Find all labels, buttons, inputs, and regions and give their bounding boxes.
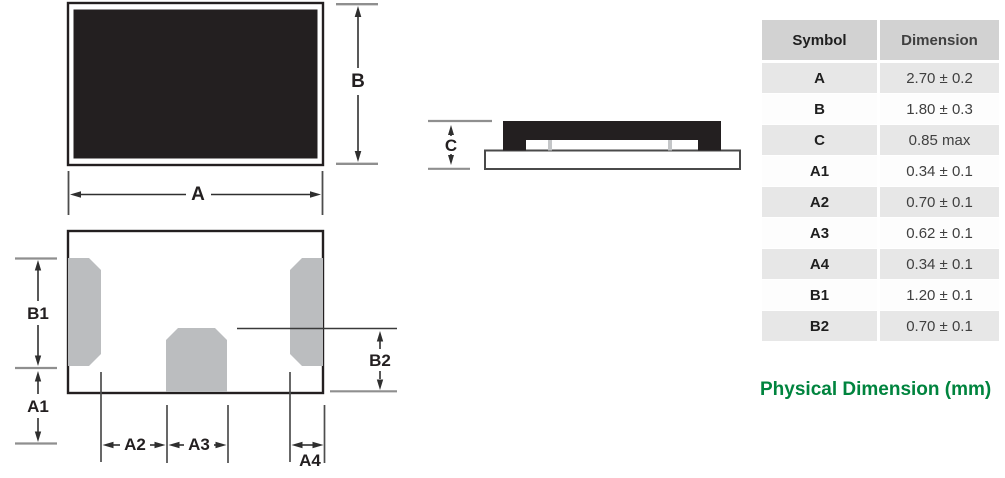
table-body: A 2.70 ± 0.2 B 1.80 ± 0.3 C 0.85 max A1 …	[762, 63, 999, 341]
top-view-body	[74, 10, 318, 159]
label-A1: A1	[22, 398, 54, 415]
table-row: A4 0.34 ± 0.1	[762, 249, 999, 279]
header-symbol: Symbol	[762, 20, 877, 60]
arrowhead-up	[448, 125, 454, 135]
table-row: B 1.80 ± 0.3	[762, 94, 999, 124]
row-value: 0.62 ± 0.1	[880, 218, 999, 248]
arrowhead-up	[355, 6, 362, 17]
label-B2: B2	[364, 352, 396, 369]
row-value: 0.85 max	[880, 125, 999, 155]
table-row: B1 1.20 ± 0.1	[762, 280, 999, 310]
physical-dimension-drawing: A B C B1 A1 A2 A3 A4 B2 Symbol Dimension…	[0, 0, 1005, 478]
arrowhead-left	[103, 442, 114, 448]
row-value: 1.80 ± 0.3	[880, 94, 999, 124]
row-value: 0.70 ± 0.1	[880, 311, 999, 341]
row-symbol: B	[762, 94, 877, 124]
bottom-view	[68, 231, 323, 393]
pad-right	[290, 258, 323, 366]
dimension-table: Symbol Dimension A 2.70 ± 0.2 B 1.80 ± 0…	[762, 20, 999, 342]
label-B: B	[345, 72, 371, 91]
side-view-lid	[503, 121, 721, 151]
row-symbol: B1	[762, 280, 877, 310]
label-A4: A4	[294, 452, 326, 469]
table-row: C 0.85 max	[762, 125, 999, 155]
arrowhead-left	[292, 442, 303, 448]
arrowhead-right	[313, 442, 324, 448]
label-B1: B1	[22, 305, 54, 322]
row-symbol: A2	[762, 187, 877, 217]
arrowhead-right	[310, 191, 321, 198]
row-symbol: A1	[762, 156, 877, 186]
row-symbol: C	[762, 125, 877, 155]
table-row: A3 0.62 ± 0.1	[762, 218, 999, 248]
arrowhead-down	[448, 155, 454, 165]
row-value: 0.34 ± 0.1	[880, 156, 999, 186]
side-view-pad-tick-left	[548, 140, 552, 151]
side-view-base	[485, 151, 740, 170]
label-A2: A2	[121, 436, 149, 453]
label-C: C	[438, 137, 464, 154]
arrowhead-left	[169, 442, 180, 448]
table-row: A 2.70 ± 0.2	[762, 63, 999, 93]
table-row: A2 0.70 ± 0.1	[762, 187, 999, 217]
arrowhead-down	[377, 380, 383, 391]
row-value: 1.20 ± 0.1	[880, 280, 999, 310]
row-value: 2.70 ± 0.2	[880, 63, 999, 93]
row-symbol: A	[762, 63, 877, 93]
arrowhead-up	[35, 260, 41, 271]
table-header-row: Symbol Dimension	[762, 20, 999, 60]
dim-A4	[292, 442, 324, 448]
arrowhead-down	[35, 356, 41, 367]
pad-left	[68, 258, 101, 366]
arrowhead-left	[70, 191, 81, 198]
pad-center	[166, 328, 227, 392]
arrowhead-down	[35, 432, 41, 443]
arrowhead-up	[35, 371, 41, 382]
row-symbol: A3	[762, 218, 877, 248]
table-row: B2 0.70 ± 0.1	[762, 311, 999, 341]
header-dimension: Dimension	[880, 20, 999, 60]
row-value: 0.34 ± 0.1	[880, 249, 999, 279]
arrowhead-up	[377, 331, 383, 342]
arrowhead-right	[216, 442, 227, 448]
label-A: A	[185, 185, 211, 204]
row-symbol: B2	[762, 311, 877, 341]
row-value: 0.70 ± 0.1	[880, 187, 999, 217]
top-view	[68, 3, 323, 165]
arrowhead-right	[155, 442, 166, 448]
table-row: A1 0.34 ± 0.1	[762, 156, 999, 186]
row-symbol: A4	[762, 249, 877, 279]
side-view	[485, 121, 740, 169]
caption-physical-dimension: Physical Dimension (mm)	[760, 379, 1005, 401]
side-view-pad-tick-right	[668, 140, 672, 151]
arrowhead-down	[355, 151, 362, 162]
label-A3: A3	[185, 436, 213, 453]
